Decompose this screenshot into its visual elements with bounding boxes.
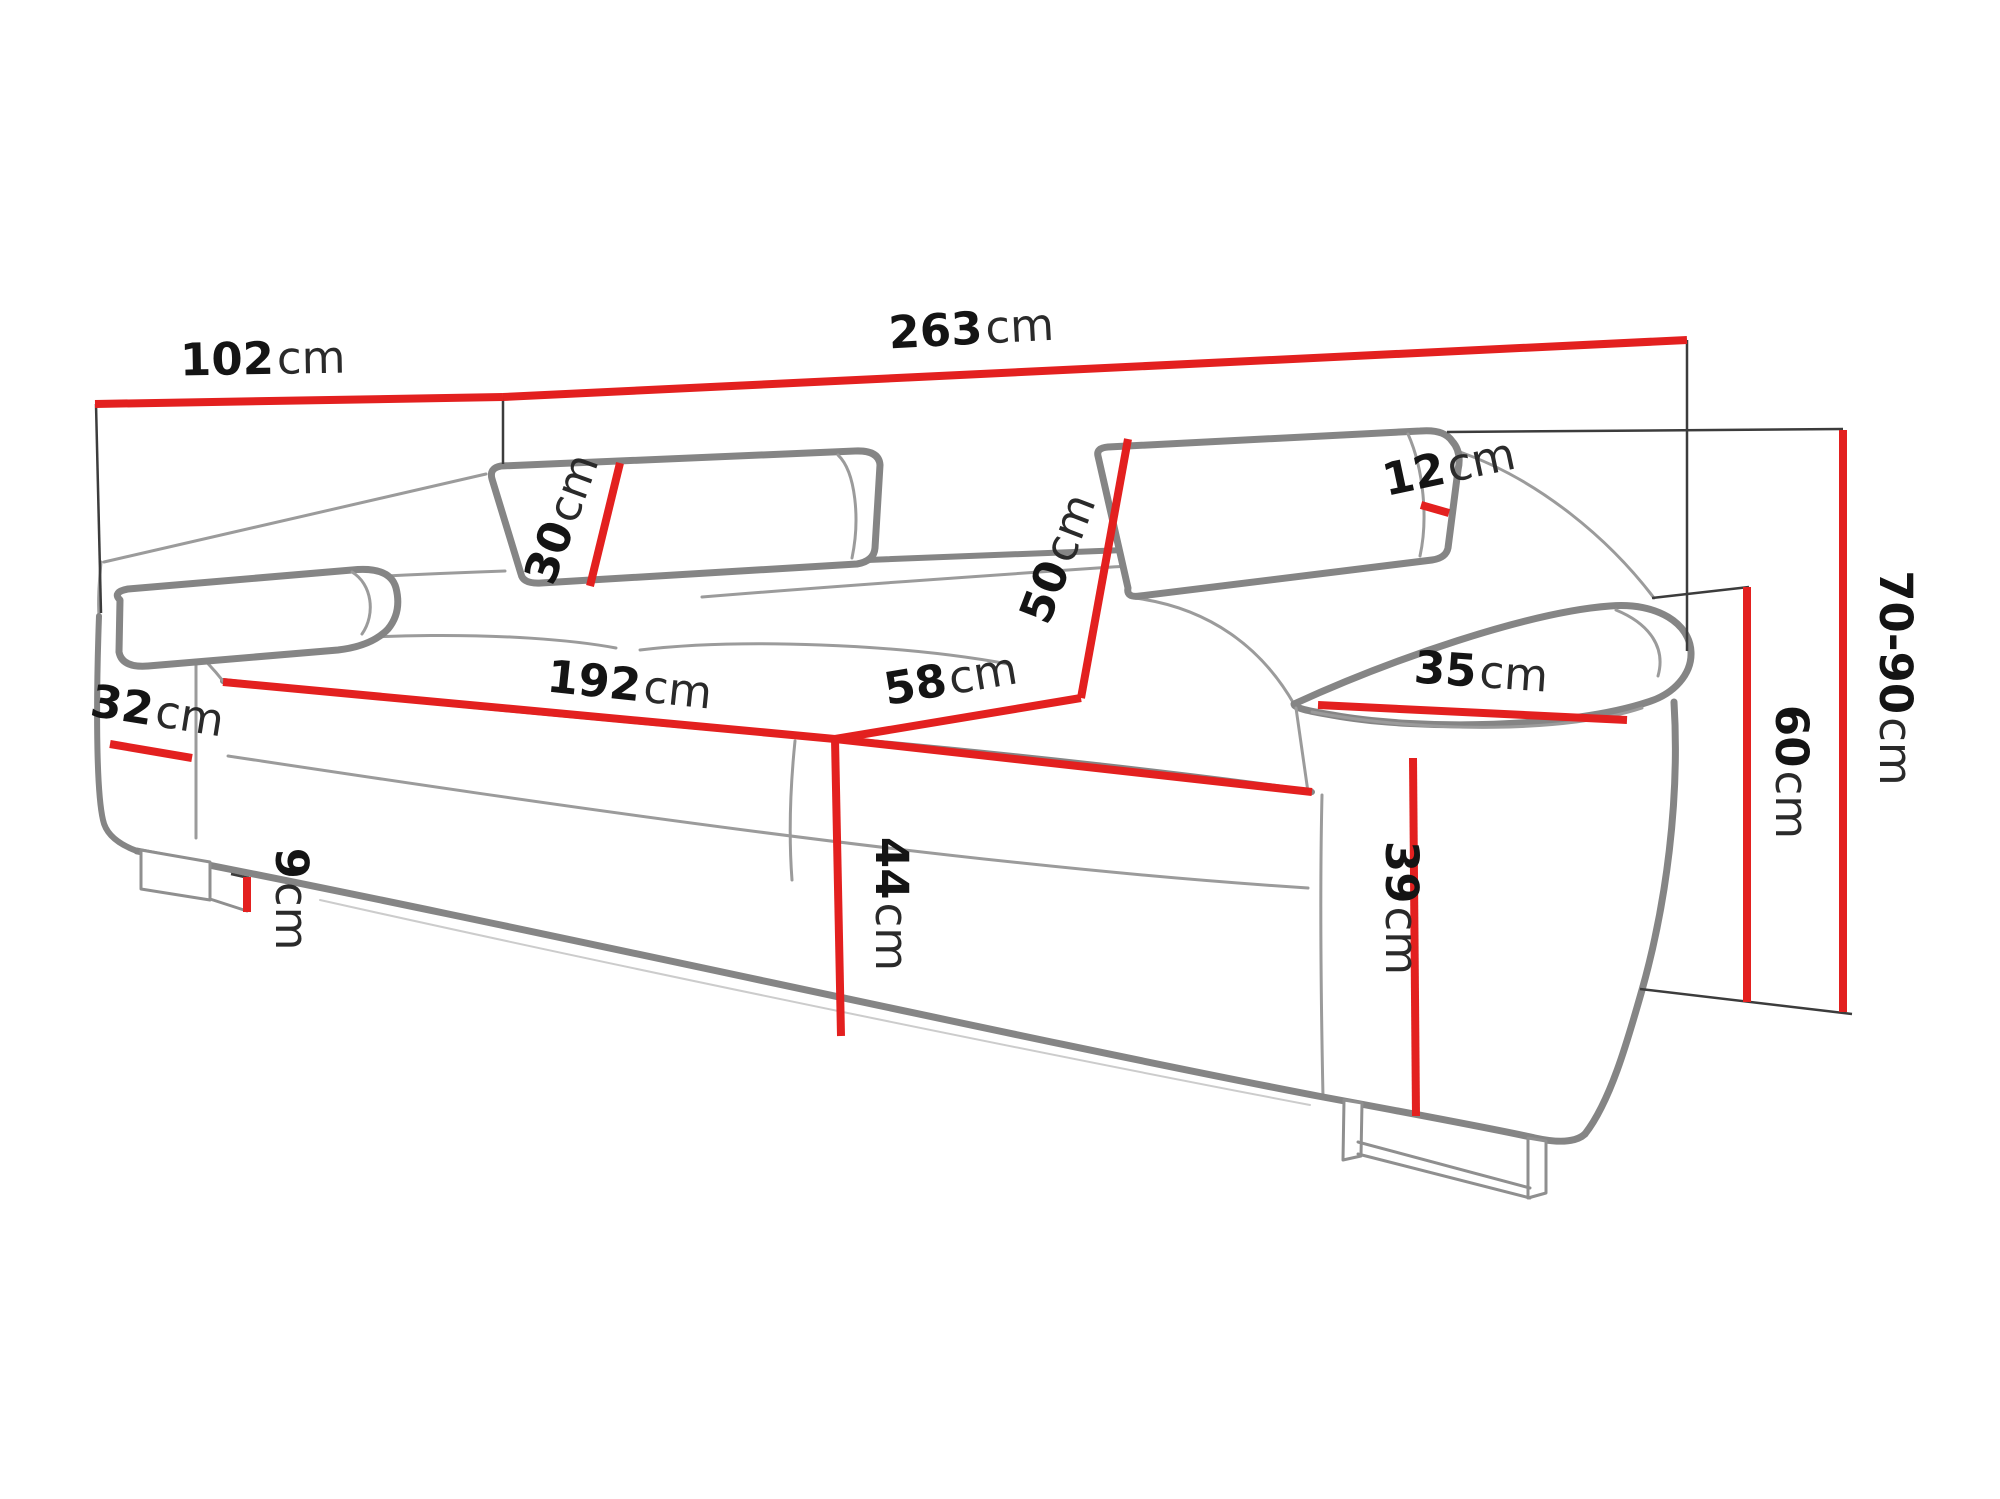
left-leg-foot [210, 899, 247, 911]
seat-cushion-divider [790, 741, 795, 880]
dim-label-seat-depth: 58cm [880, 642, 1021, 716]
dim-label-seat-height: 44cm [865, 837, 918, 971]
sofa-bottom-edge [137, 851, 1585, 1141]
right-armrest-front-left-edge [1296, 708, 1308, 792]
dimline-sofa-depth-102 [95, 397, 503, 404]
dim-label-armrest-floor-height: 60cm [1765, 705, 1818, 839]
seat-armrest-divider [1321, 795, 1323, 1097]
dimline-seat-width-192 [223, 682, 1312, 792]
left-armrest-pillow [117, 569, 397, 666]
right-leg-bracket [1343, 1100, 1546, 1198]
dim-label-seat-width: 192cm [545, 650, 715, 720]
dim-label-sofa-depth: 102cm [180, 331, 346, 387]
dim-label-left-armrest-width: 32cm [87, 674, 228, 747]
sofa-outline [97, 431, 1691, 1198]
dimline-left-armrest-width-32 [110, 744, 192, 758]
dim-label-sofa-width: 263cm [887, 298, 1055, 360]
dimension-lines [95, 340, 1843, 1116]
dim-label-total-height: 70-90cm [1869, 570, 1922, 786]
backrest-right-sweep [1135, 598, 1294, 704]
left-leg-bracket [141, 850, 247, 911]
diagram-canvas: 102cm 263cm 12cm 30cm 50cm 192cm 58cm 35… [0, 0, 2000, 1499]
sofa-dimension-diagram: 102cm 263cm 12cm 30cm 50cm 192cm 58cm 35… [0, 0, 2000, 1499]
back-panel-top-edge [104, 474, 486, 562]
right-leg-bar-bottom [1358, 1154, 1530, 1198]
right-leg-front-post [1343, 1100, 1362, 1160]
floor-shadow [320, 900, 1310, 1105]
ext-armrest-to-60 [1652, 587, 1749, 598]
right-armrest-outer-edge [1585, 702, 1675, 1134]
dim-label-right-armrest-width: 35cm [1412, 640, 1550, 702]
right-leg-bar-top [1358, 1142, 1530, 1188]
left-leg-frame [141, 850, 210, 900]
dimline-sofa-width-263 [503, 340, 1687, 397]
dim-label-armrest-height: 39cm [1375, 841, 1428, 975]
dimline-seat-height-44 [835, 739, 841, 1036]
dim-label-backrest-height: 50cm [1009, 486, 1107, 630]
dim-label-leg-height: 9cm [265, 848, 318, 951]
